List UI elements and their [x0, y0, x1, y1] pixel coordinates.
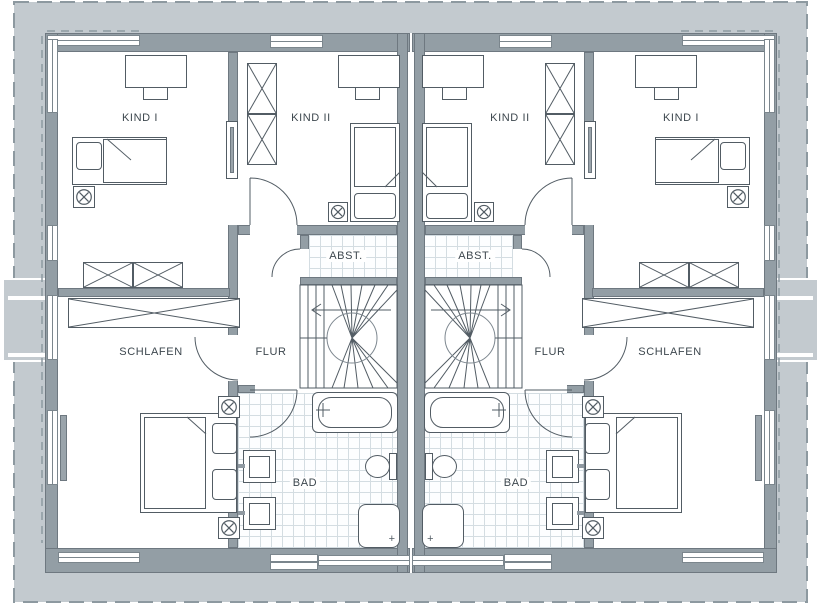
window-left-schlafen-upper	[764, 295, 775, 360]
wardrobe-icon	[545, 114, 575, 165]
sink-basin	[249, 456, 270, 478]
door-opening-kind1-sliding	[228, 175, 238, 225]
window-bottom-bad	[270, 554, 318, 570]
sink-basin	[249, 503, 270, 525]
window-top-corner	[47, 35, 140, 46]
door-opening-bad	[255, 385, 297, 393]
pillow	[585, 423, 610, 454]
floor-plan-page: KIND I KIND II KIND II KIND I ABST. ABST…	[0, 0, 821, 606]
dwelling-unit-left	[45, 33, 410, 573]
door-opening-kind2	[250, 225, 297, 235]
window-bottom-corner	[682, 552, 764, 563]
desk	[338, 55, 400, 88]
door-opening-abst	[513, 249, 522, 277]
door-opening-schlafen	[584, 335, 594, 381]
party-wall	[397, 33, 408, 573]
room-label-abst-left: ABST.	[326, 250, 366, 262]
window-left-schlafen-lower	[764, 410, 775, 485]
pillow	[426, 193, 468, 219]
wardrobe-icon	[68, 298, 240, 328]
room-label-kind1-left: KIND I	[119, 112, 161, 124]
wardrobe-icon	[83, 262, 133, 288]
toilet-tank	[389, 453, 397, 480]
pillow	[212, 423, 237, 454]
mattress	[616, 417, 678, 509]
stool-icon	[73, 186, 95, 208]
window-left-kind1	[764, 225, 775, 261]
room-label-bad-left: BAD	[290, 477, 320, 489]
toilet-bowl	[432, 455, 457, 478]
window-bottom-center	[412, 555, 504, 566]
interior-wall-kind1-schlafen	[58, 288, 230, 297]
stool-icon	[582, 396, 604, 418]
radiator	[755, 415, 762, 481]
door-opening-kind2	[525, 225, 572, 235]
wardrobe-icon	[247, 63, 277, 114]
room-label-kind1-right: KIND I	[660, 112, 702, 124]
window-left-schlafen-upper	[47, 295, 58, 360]
stool-icon	[218, 396, 240, 418]
sliding-door-leaf	[588, 127, 592, 173]
sink-tap-icon	[238, 511, 245, 515]
door-opening-abst	[300, 249, 309, 277]
pillow	[585, 469, 610, 500]
wardrobe-icon	[689, 262, 739, 288]
room-label-schlafen-right: SCHLAFEN	[635, 346, 704, 358]
window-left-corner	[47, 39, 58, 113]
room-label-kind2-right: KIND II	[487, 112, 533, 124]
mattress	[655, 139, 719, 183]
stool-icon	[328, 202, 348, 222]
stool-icon	[218, 517, 240, 539]
room-label-kind2-left: KIND II	[288, 112, 334, 124]
door-opening-kind1-sliding	[584, 175, 594, 225]
bathtub-inner	[318, 397, 392, 428]
interior-wall-abst-south	[300, 277, 397, 285]
shower-tray	[422, 504, 464, 548]
bathtub-inner	[430, 397, 504, 428]
room-label-flur-right: FLUR	[531, 346, 568, 358]
mattress	[103, 139, 167, 183]
sink-basin	[552, 503, 573, 525]
sink-tap-icon	[238, 464, 245, 468]
room-label-flur-left: FLUR	[252, 346, 289, 358]
pillow	[212, 469, 237, 500]
room-label-abst-right: ABST.	[455, 250, 495, 262]
door-opening-schlafen	[228, 335, 238, 381]
mattress	[426, 127, 468, 187]
wardrobe-icon	[545, 63, 575, 114]
window-bottom-corner	[58, 552, 140, 563]
stool-icon	[474, 202, 494, 222]
pillow	[76, 142, 102, 170]
chair	[143, 88, 168, 100]
window-top-kind2	[270, 35, 323, 48]
stool-icon	[727, 186, 749, 208]
radiator	[60, 415, 67, 481]
sliding-door-leaf	[230, 127, 234, 173]
window-top-kind2	[499, 35, 552, 48]
mattress	[354, 127, 396, 187]
chair	[355, 88, 380, 100]
window-bottom-bad	[504, 554, 552, 570]
chair	[442, 88, 467, 100]
desk	[635, 55, 697, 88]
desk	[125, 55, 187, 88]
party-wall	[414, 33, 425, 573]
wardrobe-icon	[133, 262, 183, 288]
sink-tap-icon	[577, 464, 584, 468]
door-swing-kind2	[250, 178, 297, 225]
room-label-schlafen-left: SCHLAFEN	[116, 346, 185, 358]
wardrobe-icon	[582, 298, 754, 328]
door-opening-bad	[525, 385, 567, 393]
interior-wall-kind1-schlafen	[592, 288, 764, 297]
chair	[654, 88, 679, 100]
window-left-schlafen-lower	[47, 410, 58, 485]
door-swing-abst	[272, 249, 300, 277]
window-left-corner	[764, 39, 775, 113]
door-swing-abst	[522, 249, 550, 277]
door-swing-kind2	[525, 178, 572, 225]
window-top-corner	[682, 35, 775, 46]
window-left-kind1	[47, 225, 58, 261]
pillow	[354, 193, 396, 219]
window-bottom-center	[318, 555, 410, 566]
wardrobe-icon	[639, 262, 689, 288]
shower-tray	[358, 504, 400, 548]
stool-icon	[582, 517, 604, 539]
dwelling-unit-right	[412, 33, 777, 573]
stair-direction-arrow-icon	[431, 304, 510, 316]
room-label-bad-right: BAD	[501, 477, 531, 489]
interior-wall-abst-south	[425, 277, 522, 285]
wardrobe-icon	[247, 114, 277, 165]
sink-basin	[552, 456, 573, 478]
mattress	[144, 417, 206, 509]
toilet-bowl	[365, 455, 390, 478]
pillow	[720, 142, 746, 170]
stair-direction-arrow-icon	[312, 304, 391, 316]
desk	[422, 55, 484, 88]
sink-tap-icon	[577, 511, 584, 515]
